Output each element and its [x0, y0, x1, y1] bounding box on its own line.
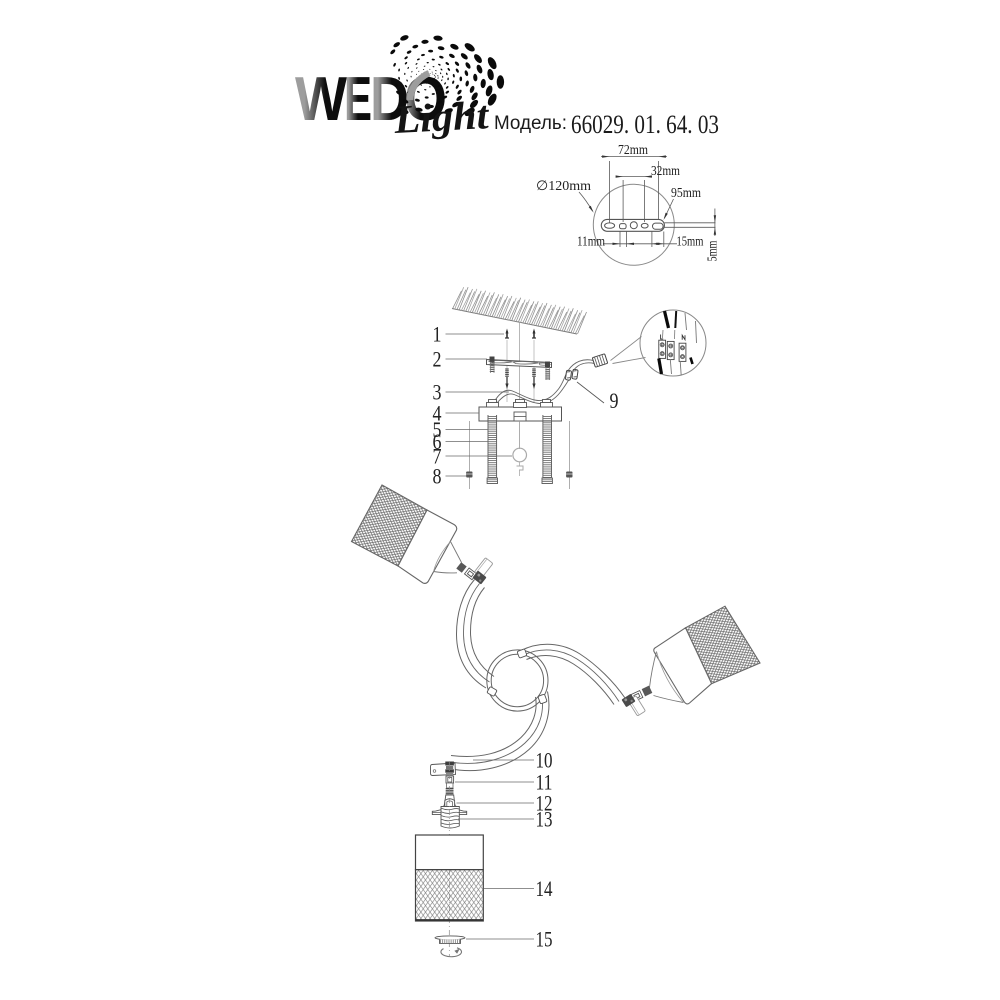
- svg-text:15: 15: [536, 927, 553, 952]
- svg-text:95mm: 95mm: [671, 185, 701, 200]
- svg-text:W: W: [295, 65, 347, 134]
- svg-text:72mm: 72mm: [618, 142, 648, 157]
- svg-text:13: 13: [536, 807, 553, 832]
- svg-text:66029. 01. 64. 03: 66029. 01. 64. 03: [571, 110, 719, 139]
- svg-text:∅120mm: ∅120mm: [536, 178, 592, 193]
- svg-text:Модель:: Модель:: [494, 113, 567, 134]
- svg-text:15mm: 15mm: [677, 234, 704, 249]
- svg-text:14: 14: [536, 876, 553, 901]
- svg-text:11mm: 11mm: [577, 234, 605, 249]
- svg-text:5mm: 5mm: [705, 240, 720, 261]
- svg-text:2: 2: [433, 347, 442, 372]
- svg-text:Light: Light: [392, 92, 491, 142]
- svg-text:1: 1: [433, 322, 442, 347]
- svg-text:32mm: 32mm: [651, 163, 680, 178]
- svg-text:8: 8: [433, 464, 442, 489]
- svg-text:E: E: [344, 65, 372, 134]
- svg-text:9: 9: [610, 388, 619, 413]
